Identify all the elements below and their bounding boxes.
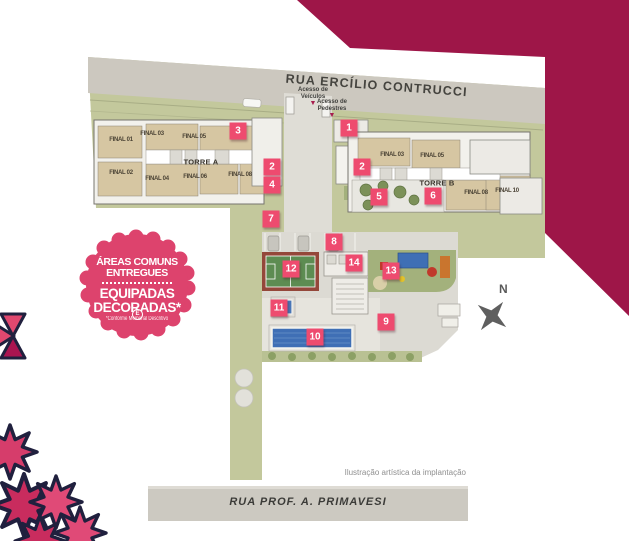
badge-footnote: *Conforme Memorial Descritivo xyxy=(98,316,176,322)
plan-marker-8: 8 xyxy=(326,234,343,251)
badge-line-3: EQUIPADAS xyxy=(85,287,189,301)
unit-label-a-final-05: FINAL 05 xyxy=(182,134,206,140)
plan-marker-9: 9 xyxy=(378,314,395,331)
plan-marker-2-torre-b: 2 xyxy=(354,159,371,176)
plan-marker-4: 4 xyxy=(264,177,281,194)
plan-marker-5: 5 xyxy=(371,189,388,206)
tower-b-label: TORRE B xyxy=(419,179,454,188)
badge-line-2: ENTREGUES xyxy=(85,268,189,279)
hedge-row xyxy=(262,351,422,362)
unit-label-b-final-05: FINAL 05 xyxy=(420,153,444,159)
unit-label-a-final-06: FINAL 06 xyxy=(183,174,207,180)
decor-hourglass-icon xyxy=(0,314,25,358)
plan-marker-14: 14 xyxy=(346,255,363,272)
compass-icon xyxy=(467,291,518,342)
plan-marker-2-torre-a: 2 xyxy=(264,159,281,176)
plan-marker-6: 6 xyxy=(425,188,442,205)
badge: ÁREAS COMUNS ENTREGUES EQUIPADAS E DECOR… xyxy=(85,257,189,322)
unit-label-b-final-10: FINAL 10 xyxy=(495,188,519,194)
plan-marker-7: 7 xyxy=(263,211,280,228)
plan-marker-1: 1 xyxy=(341,120,358,137)
badge-divider xyxy=(102,282,172,284)
unit-label-b-final-08: FINAL 08 xyxy=(464,190,488,196)
plan-marker-13: 13 xyxy=(383,263,400,280)
plan-marker-11: 11 xyxy=(271,300,288,317)
street-car xyxy=(243,98,262,107)
unit-label-a-final-08: FINAL 08 xyxy=(228,172,252,178)
unit-label-a-final-04: FINAL 04 xyxy=(145,176,169,182)
compass-north-label: N xyxy=(499,282,508,296)
unit-label-a-final-03: FINAL 03 xyxy=(140,131,164,137)
plan-marker-10: 10 xyxy=(307,329,324,346)
unit-label-a-final-02: FINAL 02 xyxy=(109,170,133,176)
illustration-caption: Ilustração artística da implantação xyxy=(266,468,466,477)
decor-stars-icon xyxy=(0,425,106,541)
street-label-bottom: RUA PROF. A. PRIMAVESI xyxy=(148,496,468,508)
pedestrian-access-label: Acesso de Pedestres ▼ xyxy=(317,99,347,120)
plan-marker-3: 3 xyxy=(230,123,247,140)
playground xyxy=(368,250,456,292)
tower-a-label: TORRE A xyxy=(184,158,219,167)
unit-label-b-final-03: FINAL 03 xyxy=(380,152,404,158)
site-plan-page: RUA ERCÍLIO CONTRUCCI RUA PROF. A. PRIMA… xyxy=(0,0,629,541)
plan-marker-12: 12 xyxy=(283,261,300,278)
vehicle-gate xyxy=(286,97,294,114)
unit-label-a-final-01: FINAL 01 xyxy=(109,137,133,143)
